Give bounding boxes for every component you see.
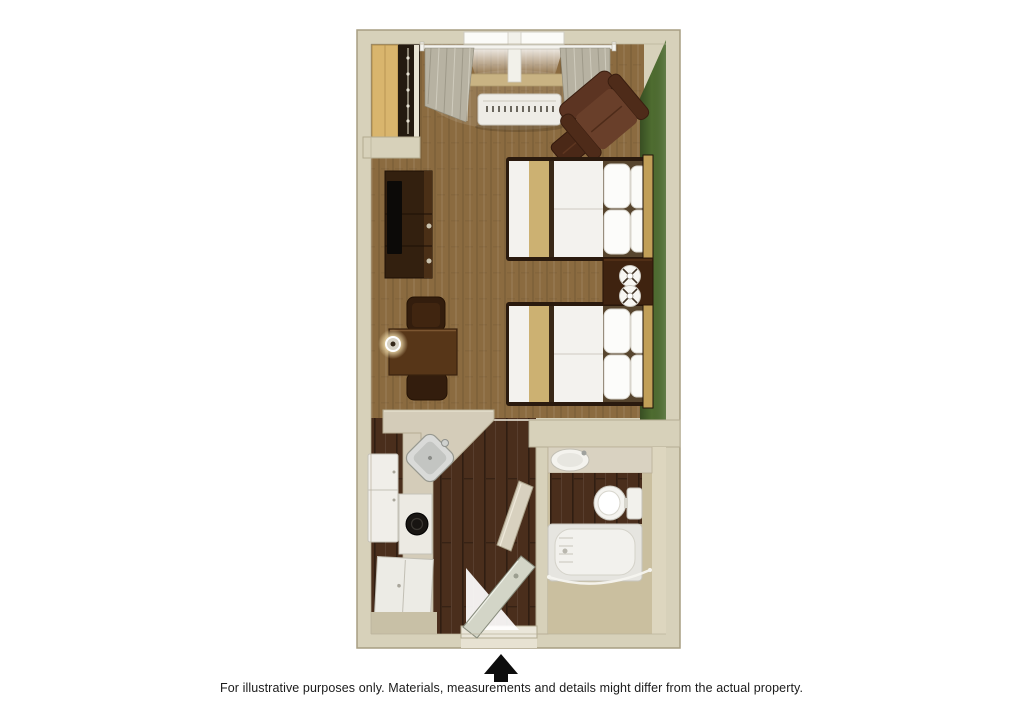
burner (406, 513, 428, 535)
faucet (582, 451, 587, 456)
window-mullion (508, 32, 521, 82)
closet-wall-stub (363, 137, 420, 158)
bed-1 (506, 155, 653, 263)
toilet (594, 486, 642, 520)
bed-2 (506, 300, 653, 408)
bathroom-left-wall (536, 447, 548, 634)
nightstand-lamp (620, 266, 641, 287)
floor-plan-image (0, 0, 1023, 716)
bathroom (529, 420, 680, 634)
table-lamp (378, 329, 408, 359)
disclaimer-text: For illustrative purposes only. Material… (0, 681, 1023, 695)
television (387, 181, 402, 254)
refrigerator (368, 454, 398, 542)
headboard (643, 155, 653, 263)
dining-chair-bottom (407, 373, 447, 400)
drawer-knob (427, 259, 432, 264)
door-knob (514, 574, 519, 579)
kitchen-floor-edge (371, 612, 437, 634)
window (464, 32, 564, 86)
faucet (442, 440, 449, 447)
stove (399, 494, 432, 554)
tv-dresser (385, 171, 432, 278)
entrance-arrow-icon (484, 654, 518, 682)
nightstand-lamp (620, 286, 641, 307)
vanity-sink (548, 447, 652, 473)
bathtub (548, 524, 642, 581)
dining-chair-top (407, 297, 445, 331)
air-conditioner (475, 94, 563, 132)
drain (563, 549, 568, 554)
drawer-knob (427, 224, 432, 229)
headboard (643, 300, 653, 408)
kitchen-cabinet (375, 557, 434, 616)
closet (363, 44, 420, 158)
floor-plan-page: For illustrative purposes only. Material… (0, 0, 1023, 716)
bathroom-top-wall (529, 420, 680, 447)
